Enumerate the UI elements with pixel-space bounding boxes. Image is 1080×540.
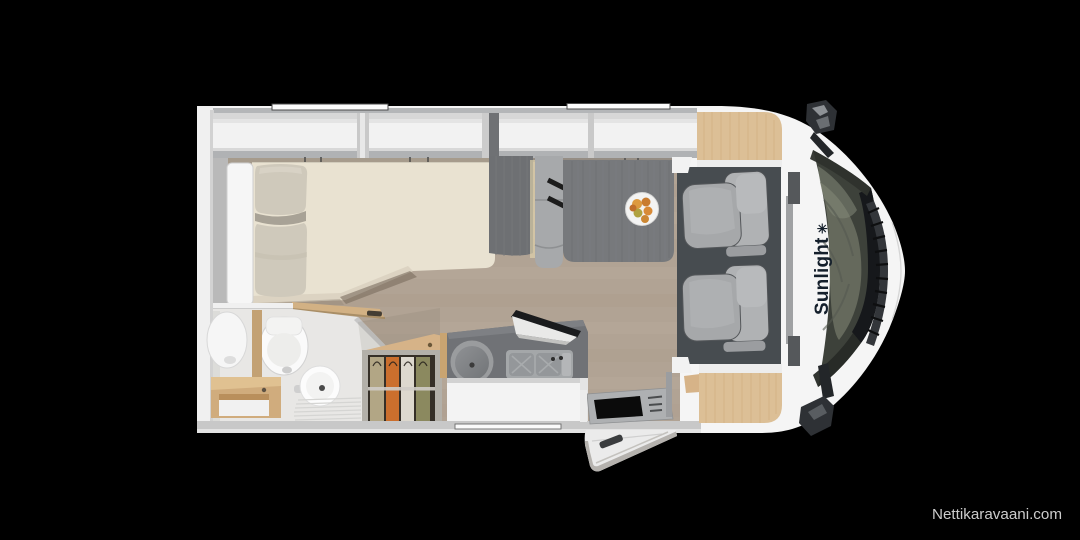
svg-text:✳: ✳: [815, 223, 830, 234]
svg-text:Sunlight: Sunlight: [812, 237, 833, 315]
svg-text:Nettikaravaani.com: Nettikaravaani.com: [932, 506, 1062, 523]
